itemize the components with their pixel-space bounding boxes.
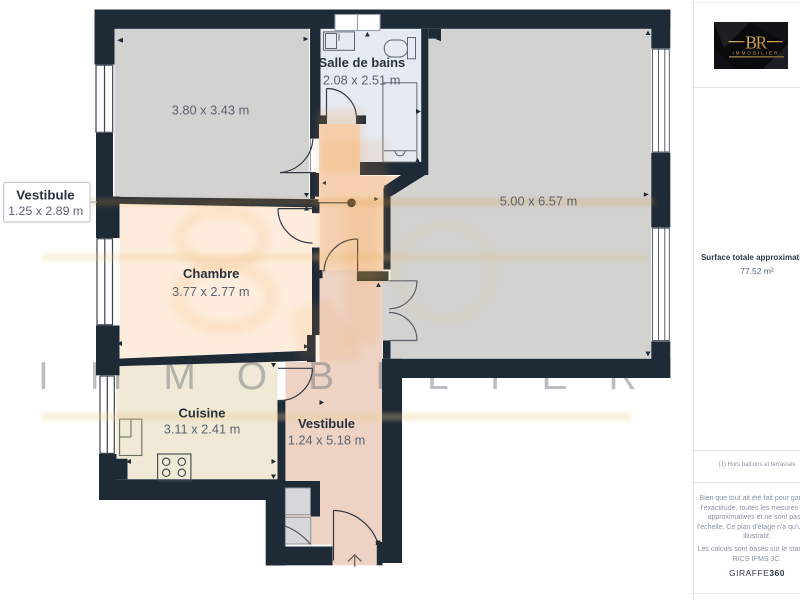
- svg-text:3.80 x 3.43 m: 3.80 x 3.43 m: [172, 103, 250, 118]
- svg-text:3.11 x 2.41 m: 3.11 x 2.41 m: [164, 422, 241, 437]
- svg-text:IMMOBILIER: IMMOBILIER: [733, 50, 780, 55]
- svg-text:BR: BR: [746, 32, 768, 52]
- svg-text:1.24 x 5.18 m: 1.24 x 5.18 m: [288, 433, 366, 448]
- svg-text:5.00 x 6.57 m: 5.00 x 6.57 m: [500, 194, 578, 209]
- svg-text:3.77 x 2.77 m: 3.77 x 2.77 m: [172, 284, 250, 299]
- svg-text:Cuisine: Cuisine: [179, 406, 226, 421]
- svg-text:Salle de bains: Salle de bains: [319, 55, 406, 70]
- svg-text:Vestibule: Vestibule: [16, 188, 74, 203]
- svg-text:Chambre: Chambre: [183, 266, 239, 281]
- svg-text:Vestibule: Vestibule: [298, 416, 355, 431]
- svg-text:2.08 x 2.51 m: 2.08 x 2.51 m: [323, 72, 401, 87]
- svg-text:1.25 x 2.89 m: 1.25 x 2.89 m: [8, 204, 83, 218]
